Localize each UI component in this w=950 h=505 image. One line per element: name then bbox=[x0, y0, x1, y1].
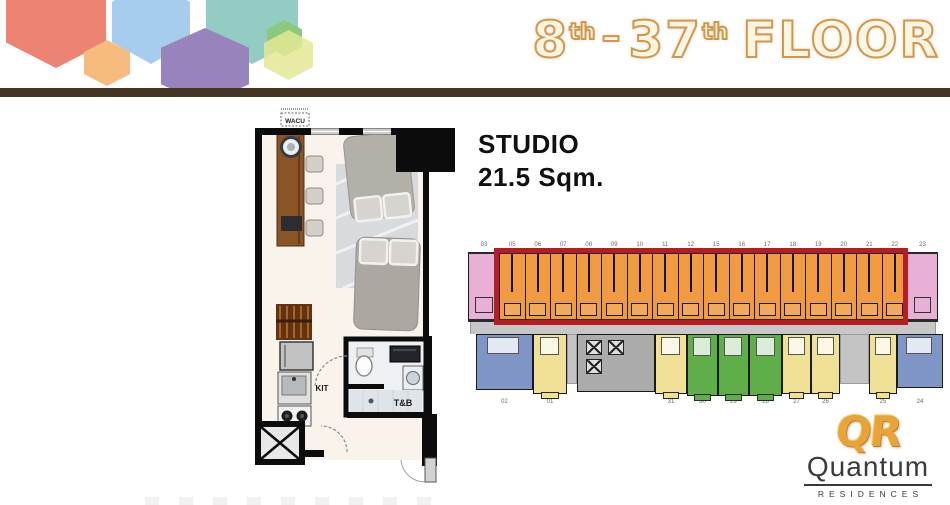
unit-24: 24 bbox=[897, 334, 943, 388]
floor-end-ordinal: th bbox=[702, 20, 728, 45]
slide-page: 8th–37thFLOOR STUDIO 21.5 Sqm. bbox=[0, 0, 950, 505]
unit-23: 23 bbox=[907, 254, 938, 319]
floor-word: FLOOR bbox=[742, 11, 940, 69]
divider-bar bbox=[0, 88, 950, 97]
unit-type-label: STUDIO bbox=[478, 128, 604, 160]
unit-area-label: 21.5 Sqm. bbox=[478, 160, 604, 194]
toilet-bath bbox=[346, 339, 426, 415]
floor-start-ordinal: th bbox=[569, 20, 595, 45]
unit-number: 24 bbox=[917, 399, 924, 405]
kitchen-label: KIT bbox=[316, 384, 329, 393]
unit-number: 30 bbox=[699, 399, 706, 405]
corridor-gap bbox=[840, 334, 869, 384]
bath-label: T&B bbox=[394, 398, 413, 408]
unit-number: 23 bbox=[919, 242, 926, 248]
highlight-rect bbox=[494, 248, 908, 325]
unit-number: 25 bbox=[880, 399, 887, 405]
unit-number: 28 bbox=[762, 399, 769, 405]
cropped-bottom-marks bbox=[145, 497, 435, 505]
unit-29: 29 bbox=[718, 334, 749, 396]
unit-27: 27 bbox=[782, 334, 811, 394]
elevator-shaft bbox=[586, 340, 602, 355]
corridor-gap bbox=[567, 334, 577, 384]
wacu-label: WACU bbox=[285, 118, 305, 125]
unit-31: 31 bbox=[655, 334, 687, 394]
kitchen-block bbox=[278, 342, 313, 426]
unit-number: 01 bbox=[547, 399, 554, 405]
elevator-core bbox=[577, 334, 655, 392]
building-floor-plate: 030506070809101112151617181920212223 020… bbox=[468, 238, 938, 410]
unit-number: 03 bbox=[481, 242, 488, 248]
elevator-shaft bbox=[586, 359, 602, 374]
utility-shaft bbox=[258, 424, 302, 462]
logo-rule bbox=[804, 484, 932, 486]
plate-bottom-row: 02013130292827262524 bbox=[476, 334, 943, 396]
logo-monogram: QR bbox=[790, 410, 947, 454]
slatted-bench bbox=[276, 304, 312, 340]
unit-number: 29 bbox=[730, 399, 737, 405]
unit-25: 25 bbox=[869, 334, 897, 394]
elevator-shaft bbox=[608, 340, 624, 355]
logo-name: Quantum bbox=[792, 452, 944, 482]
unit-26: 26 bbox=[811, 334, 840, 394]
unit-02: 02 bbox=[476, 334, 533, 390]
unit-info: STUDIO 21.5 Sqm. bbox=[478, 128, 604, 194]
bed-bottom bbox=[353, 237, 420, 331]
studio-floor-plan: KIT T&B bbox=[243, 98, 458, 493]
logo-subtitle: RESIDENCES bbox=[792, 489, 944, 499]
header-band: 8th–37thFLOOR bbox=[0, 0, 950, 97]
unit-28: 28 bbox=[749, 334, 782, 396]
floor-plan-drawing: KIT T&B bbox=[243, 98, 458, 493]
floor-end: 37 bbox=[628, 11, 702, 69]
floor-start: 8 bbox=[532, 11, 569, 69]
quantum-residences-logo: QR Quantum RESIDENCES bbox=[792, 410, 944, 499]
unit-number: 02 bbox=[501, 399, 508, 405]
bar-stools bbox=[306, 156, 323, 236]
unit-30: 30 bbox=[687, 334, 718, 396]
range-dash: – bbox=[601, 14, 622, 58]
kitchen-counter bbox=[277, 134, 304, 246]
floor-range-title: 8th–37thFLOOR bbox=[532, 2, 940, 71]
unit-number: 26 bbox=[822, 399, 829, 405]
entry-door bbox=[401, 458, 436, 482]
unit-number: 31 bbox=[668, 399, 675, 405]
unit-number: 27 bbox=[793, 399, 800, 405]
unit-01: 01 bbox=[533, 334, 567, 394]
